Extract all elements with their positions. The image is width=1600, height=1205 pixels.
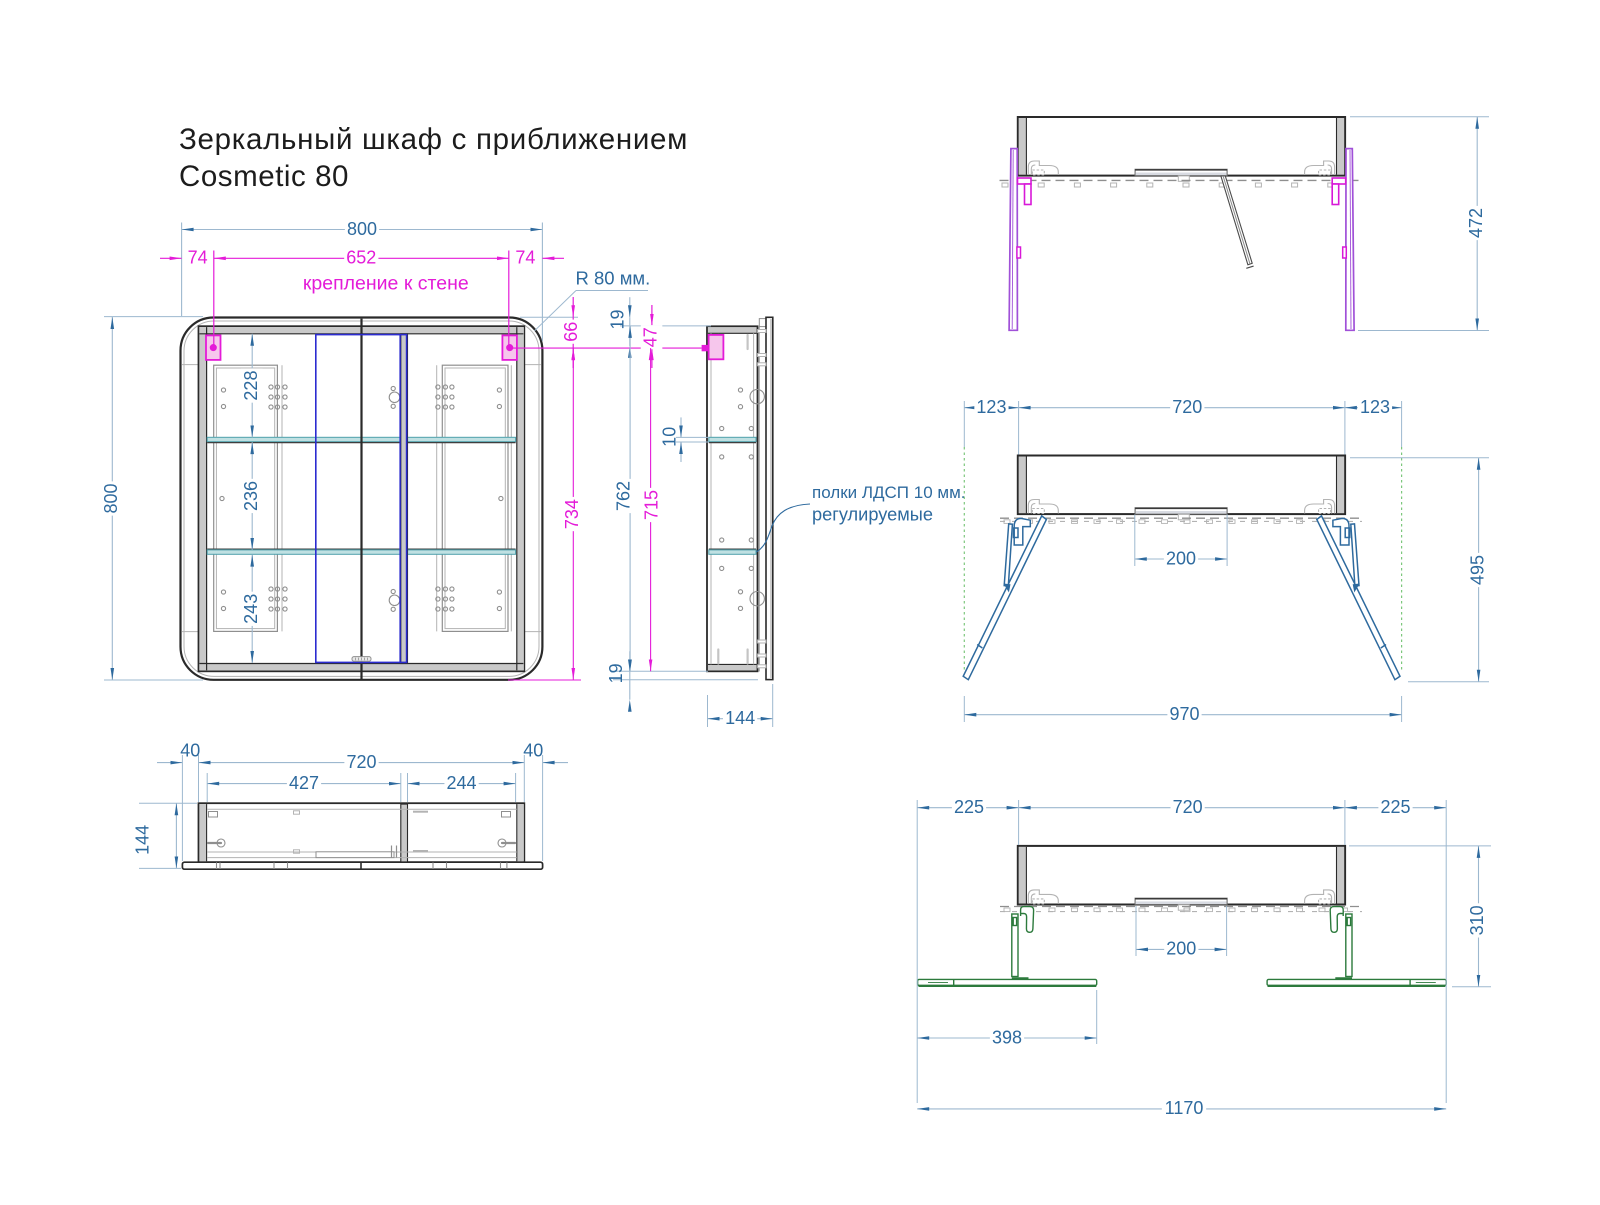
svg-text:228: 228 [241,371,261,401]
svg-text:398: 398 [992,1027,1022,1047]
svg-text:123: 123 [976,397,1006,417]
svg-text:1170: 1170 [1165,1098,1204,1118]
svg-text:40: 40 [523,740,543,760]
svg-text:40: 40 [180,740,200,760]
svg-text:74: 74 [515,248,535,268]
svg-text:200: 200 [1166,548,1196,568]
svg-text:734: 734 [562,499,582,529]
svg-text:427: 427 [289,773,319,793]
svg-text:19: 19 [606,663,626,683]
svg-text:200: 200 [1166,939,1196,959]
svg-text:225: 225 [1380,797,1410,817]
svg-text:800: 800 [101,483,121,513]
svg-text:74: 74 [188,248,208,268]
svg-text:243: 243 [241,594,261,624]
svg-text:762: 762 [613,481,633,511]
svg-text:652: 652 [346,248,376,268]
svg-text:крепление к стене: крепление к стене [303,272,469,294]
svg-text:720: 720 [1173,797,1203,817]
svg-text:244: 244 [447,773,477,793]
svg-text:47: 47 [641,327,661,347]
svg-text:полки ЛДСП 10 мм.: полки ЛДСП 10 мм. [812,483,965,502]
svg-text:10: 10 [660,427,680,447]
svg-text:66: 66 [561,322,581,342]
svg-text:144: 144 [133,825,153,855]
svg-text:144: 144 [725,708,755,728]
svg-text:720: 720 [1172,397,1202,417]
svg-text:715: 715 [642,490,662,520]
svg-text:регулируемые: регулируемые [812,505,933,525]
svg-text:Cosmetic 80: Cosmetic 80 [179,160,349,193]
svg-text:310: 310 [1467,905,1487,935]
svg-text:123: 123 [1360,397,1390,417]
svg-text:Зеркальный шкаф с приближением: Зеркальный шкаф с приближением [179,123,688,156]
svg-text:236: 236 [241,481,261,511]
svg-text:720: 720 [346,752,376,772]
svg-text:970: 970 [1169,704,1199,724]
svg-text:472: 472 [1466,208,1486,238]
svg-text:R 80 мм.: R 80 мм. [576,268,651,289]
svg-text:225: 225 [954,797,984,817]
svg-text:800: 800 [347,219,377,239]
svg-text:19: 19 [608,309,628,329]
svg-text:495: 495 [1467,555,1487,585]
